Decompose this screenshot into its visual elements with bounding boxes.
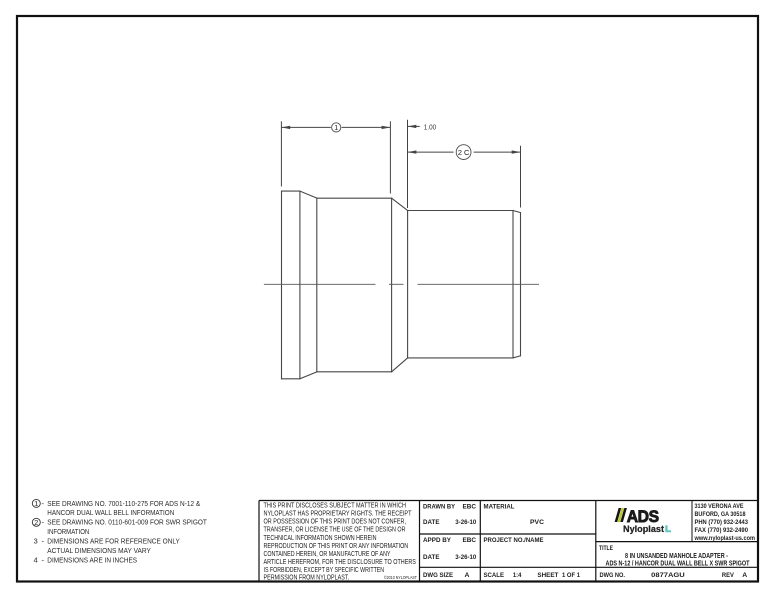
svg-text:1: 1 bbox=[34, 499, 38, 508]
svg-text:MATERIAL: MATERIAL bbox=[484, 504, 515, 511]
svg-text:3-26-10: 3-26-10 bbox=[455, 554, 476, 561]
svg-text:SCALE: SCALE bbox=[484, 572, 505, 579]
svg-text:Nyloplast: Nyloplast bbox=[623, 524, 665, 535]
svg-text:1:4: 1:4 bbox=[513, 572, 522, 579]
svg-text:DATE: DATE bbox=[423, 554, 440, 561]
svg-text:ARTICLE HEREFROM, FOR THE DISC: ARTICLE HEREFROM, FOR THE DISCLOSURE TO … bbox=[264, 558, 417, 566]
svg-text:SEE DRAWING NO. 0110-601-009 F: SEE DRAWING NO. 0110-601-009 FOR SWR SPI… bbox=[47, 518, 207, 527]
svg-text:3130 VERONA AVE: 3130 VERONA AVE bbox=[695, 503, 744, 510]
svg-text:EBC: EBC bbox=[463, 537, 477, 544]
svg-text:PERMISSION FROM NYLOPLAST.: PERMISSION FROM NYLOPLAST. bbox=[264, 574, 350, 582]
svg-text:PHN (770) 932-2443: PHN (770) 932-2443 bbox=[695, 519, 749, 526]
svg-text:HANCOR DUAL WALL BELL INFORMAT: HANCOR DUAL WALL BELL INFORMATION bbox=[47, 508, 174, 517]
svg-text:TITLE: TITLE bbox=[599, 545, 613, 552]
svg-text:DWG NO.: DWG NO. bbox=[600, 572, 626, 579]
svg-text:A: A bbox=[465, 572, 470, 579]
svg-text:1: 1 bbox=[334, 125, 338, 132]
svg-text:BUFORD, GA 30518: BUFORD, GA 30518 bbox=[695, 511, 746, 518]
svg-text:1 OF 1: 1 OF 1 bbox=[562, 572, 580, 579]
svg-text:A: A bbox=[742, 572, 747, 579]
svg-text:3: 3 bbox=[34, 537, 38, 546]
svg-text:PROJECT NO./NAME: PROJECT NO./NAME bbox=[484, 537, 544, 544]
svg-text:TECHNICAL INFORMATION SHOWN HE: TECHNICAL INFORMATION SHOWN HEREIN bbox=[264, 534, 377, 542]
svg-text:ACTUAL DIMENSIONS MAY VARY: ACTUAL DIMENSIONS MAY VARY bbox=[47, 546, 151, 555]
svg-text:TRANSFER, OR LICENSE THE USE O: TRANSFER, OR LICENSE THE USE OF THE DESI… bbox=[264, 526, 406, 534]
svg-text:THIS PRINT DISCLOSES SUBJECT M: THIS PRINT DISCLOSES SUBJECT MATTER IN W… bbox=[264, 502, 407, 510]
svg-text:EBC: EBC bbox=[463, 504, 477, 511]
svg-text:DIMENSIONS ARE IN INCHES: DIMENSIONS ARE IN INCHES bbox=[47, 555, 137, 564]
svg-text:PVC: PVC bbox=[530, 519, 544, 526]
svg-text:3-26-10: 3-26-10 bbox=[455, 519, 476, 526]
svg-text:www.nyloplast-us.com: www.nyloplast-us.com bbox=[694, 535, 755, 542]
svg-text:4: 4 bbox=[34, 555, 38, 564]
svg-text:DATE: DATE bbox=[423, 519, 440, 526]
svg-text:INFORMATION: INFORMATION bbox=[47, 527, 89, 536]
svg-text:SHEET: SHEET bbox=[537, 572, 559, 579]
svg-text:2: 2 bbox=[34, 518, 38, 527]
svg-text:FAX (770) 932-2490: FAX (770) 932-2490 bbox=[695, 527, 749, 534]
svg-text:CONTAINED HEREIN, OR MANUFACTU: CONTAINED HEREIN, OR MANUFACTURE OF ANY bbox=[264, 550, 391, 558]
svg-text:NYLOPLAST HAS PROPRIETARY RIGH: NYLOPLAST HAS PROPRIETARY RIGHTS. THE RE… bbox=[264, 510, 413, 518]
svg-text:DWG SIZE: DWG SIZE bbox=[423, 572, 453, 579]
svg-text:DRAWN BY: DRAWN BY bbox=[423, 504, 455, 511]
svg-text:ADS: ADS bbox=[627, 507, 659, 526]
svg-text:©2010 NYLOPLAST: ©2010 NYLOPLAST bbox=[384, 575, 417, 580]
svg-text:SEE DRAWING NO. 7001-110-275 F: SEE DRAWING NO. 7001-110-275 FOR ADS N-1… bbox=[47, 499, 200, 508]
svg-text:1.00: 1.00 bbox=[424, 124, 436, 131]
svg-text:ADS N-12 / HANCOR DUAL WALL BE: ADS N-12 / HANCOR DUAL WALL BELL X SWR S… bbox=[606, 558, 750, 567]
svg-text:DIMENSIONS ARE FOR REFERENCE O: DIMENSIONS ARE FOR REFERENCE ONLY bbox=[47, 537, 180, 546]
svg-text:APPD BY: APPD BY bbox=[423, 537, 451, 544]
svg-text:2 C: 2 C bbox=[458, 148, 470, 157]
svg-text:REV: REV bbox=[722, 572, 734, 579]
svg-text:OR POSSESSION OF THIS PRINT DO: OR POSSESSION OF THIS PRINT DOES NOT CON… bbox=[264, 518, 407, 526]
svg-text:REPRODUCTION OF THIS PRINT OR: REPRODUCTION OF THIS PRINT OR ANY INFORM… bbox=[264, 542, 409, 550]
svg-text:0877AGU: 0877AGU bbox=[651, 572, 685, 579]
